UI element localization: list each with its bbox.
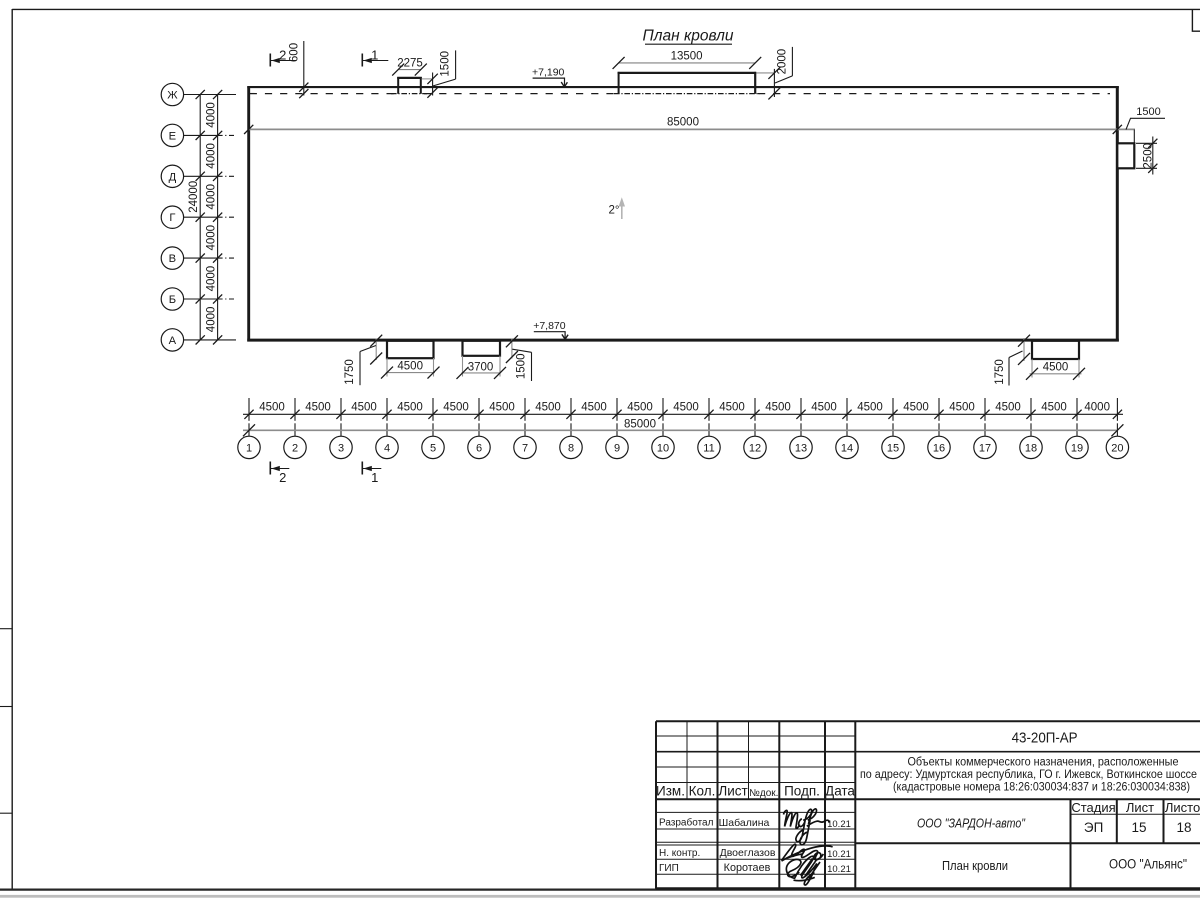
svg-text:№док.: №док. <box>749 788 778 799</box>
svg-text:16: 16 <box>933 442 945 454</box>
svg-text:+7,190: +7,190 <box>532 67 565 79</box>
svg-text:по адресу: Удмуртская республи: по адресу: Удмуртская республика, ГО г. … <box>860 769 1197 781</box>
svg-text:2500: 2500 <box>1142 143 1154 169</box>
svg-text:4500: 4500 <box>351 402 377 414</box>
svg-text:5: 5 <box>430 442 436 454</box>
svg-text:10.21: 10.21 <box>827 849 851 860</box>
svg-text:ЭП: ЭП <box>1084 820 1103 835</box>
svg-text:4000: 4000 <box>205 266 217 292</box>
svg-text:4500: 4500 <box>489 402 515 414</box>
svg-text:Коротаев: Коротаев <box>724 862 771 874</box>
svg-text:4: 4 <box>384 442 390 454</box>
svg-text:4000: 4000 <box>1084 402 1110 414</box>
svg-text:4500: 4500 <box>581 402 607 414</box>
svg-text:Дата: Дата <box>825 784 855 799</box>
svg-text:4000: 4000 <box>205 225 217 251</box>
svg-text:Кол.: Кол. <box>689 784 716 799</box>
svg-text:Разработал: Разработал <box>659 817 714 829</box>
svg-text:4500: 4500 <box>949 402 975 414</box>
svg-text:4000: 4000 <box>205 307 217 333</box>
svg-text:4500: 4500 <box>857 402 883 414</box>
svg-text:19: 19 <box>1071 442 1083 454</box>
svg-text:4500: 4500 <box>535 402 561 414</box>
svg-text:43-20П-АР: 43-20П-АР <box>1012 729 1078 746</box>
svg-text:1500: 1500 <box>1136 106 1160 118</box>
svg-text:(кадастровые номера 18:26:0300: (кадастровые номера 18:26:030034:837 и 1… <box>893 782 1190 794</box>
svg-text:18: 18 <box>1176 820 1191 835</box>
svg-text:Листов: Листов <box>1165 800 1200 815</box>
svg-text:ГИП: ГИП <box>659 863 679 874</box>
svg-text:Стадия: Стадия <box>1071 800 1115 815</box>
svg-text:13: 13 <box>795 442 807 454</box>
svg-text:1500: 1500 <box>515 354 527 380</box>
svg-text:2275: 2275 <box>397 57 423 69</box>
svg-text:17: 17 <box>979 442 991 454</box>
svg-text:Шабалина: Шабалина <box>719 817 770 829</box>
svg-text:4000: 4000 <box>205 102 217 128</box>
svg-text:2: 2 <box>279 470 286 485</box>
svg-text:10.21: 10.21 <box>827 819 851 830</box>
svg-text:+7,870: +7,870 <box>533 320 566 332</box>
svg-text:4500: 4500 <box>995 402 1021 414</box>
svg-text:План кровли: План кровли <box>643 28 734 45</box>
svg-text:15: 15 <box>1131 820 1146 835</box>
svg-text:1: 1 <box>371 48 378 63</box>
svg-text:4500: 4500 <box>1043 361 1069 373</box>
svg-text:4500: 4500 <box>627 402 653 414</box>
svg-text:3700: 3700 <box>468 361 494 373</box>
svg-text:2: 2 <box>279 48 286 63</box>
svg-text:Б: Б <box>169 294 176 306</box>
svg-text:Д: Д <box>169 171 177 183</box>
svg-text:В: В <box>169 253 176 265</box>
svg-text:85000: 85000 <box>667 117 699 129</box>
svg-text:1500: 1500 <box>440 51 452 77</box>
svg-text:Г: Г <box>169 212 175 224</box>
svg-text:Ж: Ж <box>167 90 178 102</box>
svg-text:4500: 4500 <box>259 402 285 414</box>
svg-text:2000: 2000 <box>777 49 789 75</box>
svg-text:3: 3 <box>338 442 344 454</box>
svg-text:12: 12 <box>749 442 761 454</box>
svg-text:4000: 4000 <box>205 184 217 210</box>
svg-text:ООО "Альянс": ООО "Альянс" <box>1109 857 1187 872</box>
svg-text:4500: 4500 <box>903 402 929 414</box>
svg-text:13500: 13500 <box>671 50 703 62</box>
svg-text:4500: 4500 <box>305 402 331 414</box>
svg-text:А: А <box>169 335 177 347</box>
svg-text:2°: 2° <box>609 204 620 216</box>
svg-text:9: 9 <box>614 442 620 454</box>
svg-text:600: 600 <box>288 43 300 62</box>
svg-text:1: 1 <box>371 470 378 485</box>
svg-text:Н. контр.: Н. контр. <box>659 848 700 859</box>
svg-text:Е: Е <box>169 130 176 142</box>
svg-text:4500: 4500 <box>443 402 469 414</box>
svg-text:4500: 4500 <box>397 361 423 373</box>
svg-text:20: 20 <box>1111 442 1123 454</box>
svg-text:85000: 85000 <box>624 418 656 430</box>
svg-text:4500: 4500 <box>1041 402 1067 414</box>
svg-text:6: 6 <box>476 442 482 454</box>
svg-text:11: 11 <box>703 442 714 454</box>
svg-text:15: 15 <box>887 442 899 454</box>
svg-text:10: 10 <box>657 442 669 454</box>
svg-text:Двоеглазов: Двоеглазов <box>720 847 776 859</box>
svg-text:4500: 4500 <box>765 402 791 414</box>
svg-text:10.21: 10.21 <box>827 864 851 875</box>
svg-text:4500: 4500 <box>673 402 699 414</box>
svg-text:ООО "ЗАРДОН-авто": ООО "ЗАРДОН-авто" <box>917 816 1025 830</box>
svg-text:4500: 4500 <box>719 402 745 414</box>
svg-text:План кровли: План кровли <box>942 858 1008 873</box>
svg-text:Лист: Лист <box>718 784 747 799</box>
svg-text:1: 1 <box>246 442 252 454</box>
svg-text:4000: 4000 <box>205 143 217 169</box>
svg-text:7: 7 <box>522 442 528 454</box>
svg-text:Изм.: Изм. <box>656 784 685 799</box>
svg-text:8: 8 <box>568 442 574 454</box>
svg-text:Объекты коммерческого назначен: Объекты коммерческого назначения, распол… <box>908 756 1179 768</box>
svg-text:14: 14 <box>841 442 853 454</box>
svg-text:24000: 24000 <box>188 181 200 213</box>
svg-text:18: 18 <box>1025 442 1037 454</box>
svg-text:2: 2 <box>292 442 298 454</box>
svg-text:1750: 1750 <box>994 359 1006 385</box>
svg-text:Подп.: Подп. <box>784 784 820 799</box>
svg-text:4500: 4500 <box>811 402 837 414</box>
svg-text:4500: 4500 <box>397 402 423 414</box>
svg-text:1750: 1750 <box>344 359 356 385</box>
svg-text:Лист: Лист <box>1126 800 1154 815</box>
